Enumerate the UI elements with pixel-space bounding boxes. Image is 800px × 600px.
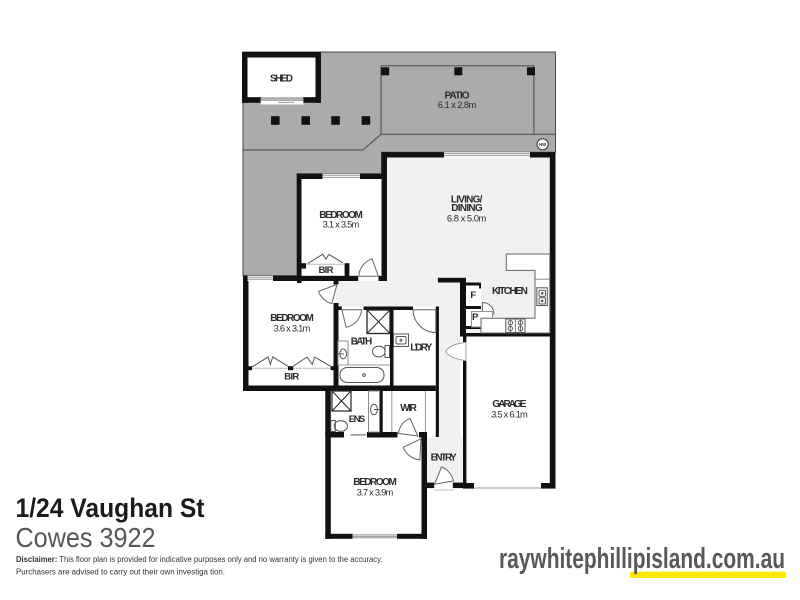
svg-text:raywhitephillipisland.com.au: raywhitephillipisland.com.au [499,543,785,575]
svg-text:1/24 Vaughan St: 1/24 Vaughan St [16,493,205,523]
svg-text:6.1 x 2.8m: 6.1 x 2.8m [438,99,477,110]
svg-text:BIR: BIR [284,371,299,382]
svg-text:KITCHEN: KITCHEN [492,286,528,297]
svg-text:F: F [470,290,476,301]
svg-text:BIR: BIR [319,265,334,276]
svg-text:ENS: ENS [349,414,365,425]
svg-text:SHED: SHED [270,74,293,85]
svg-text:ENTRY: ENTRY [431,452,457,463]
svg-text:Disclaimer: This floor plan is: Disclaimer: This floor plan is provided … [16,555,383,564]
svg-text:3.1 x 3.5m: 3.1 x 3.5m [323,219,360,230]
svg-text:Purchasers are advised to carr: Purchasers are advised to carry out thei… [16,568,225,577]
svg-text:HW: HW [539,142,546,147]
svg-text:P: P [472,312,479,323]
svg-text:L'DRY: L'DRY [410,342,432,353]
svg-text:3.6 x 3.1m: 3.6 x 3.1m [274,323,311,334]
svg-text:3.7 x 3.9m: 3.7 x 3.9m [357,487,394,498]
svg-text:WIR: WIR [400,403,417,414]
svg-text:BATH: BATH [351,337,372,348]
svg-text:Cowes 3922: Cowes 3922 [16,522,156,553]
svg-text:6.8 x 5.0m: 6.8 x 5.0m [447,212,487,223]
svg-text:3.5 x 6.1m: 3.5 x 6.1m [491,409,528,420]
